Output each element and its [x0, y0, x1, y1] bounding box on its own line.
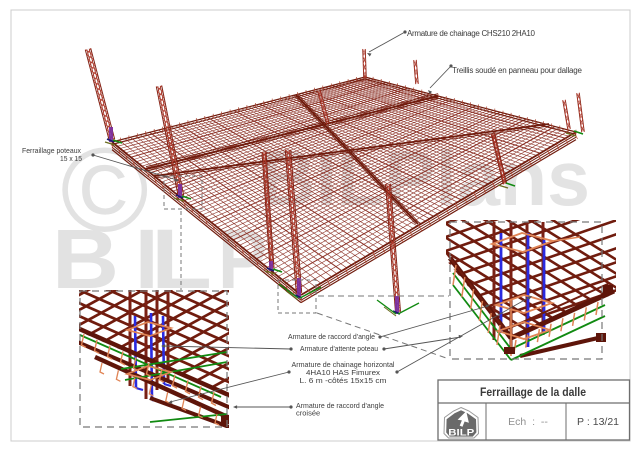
svg-text:Armature de chainage CHS210 2H: Armature de chainage CHS210 2HA10	[407, 29, 536, 38]
svg-text:Ech : --: Ech : --	[508, 416, 548, 428]
svg-text:P : 13/21: P : 13/21	[577, 416, 619, 428]
svg-text:Armature de raccord d'angle: Armature de raccord d'angle	[288, 332, 375, 341]
svg-text:Treillis soudé en panneau pour: Treillis soudé en panneau pour dallage	[452, 66, 583, 75]
svg-text:croisée: croisée	[296, 409, 320, 418]
svg-text:P: P	[218, 212, 267, 306]
svg-text:Armature d'attente poteau: Armature d'attente poteau	[300, 344, 378, 353]
svg-text:BILP: BILP	[448, 427, 474, 437]
svg-text:Ferraillage de la dalle: Ferraillage de la dalle	[480, 385, 586, 399]
svg-text:L. 6 m -côtés 15x15 cm: L. 6 m -côtés 15x15 cm	[300, 376, 387, 385]
svg-text:15 x 15: 15 x 15	[60, 154, 82, 163]
